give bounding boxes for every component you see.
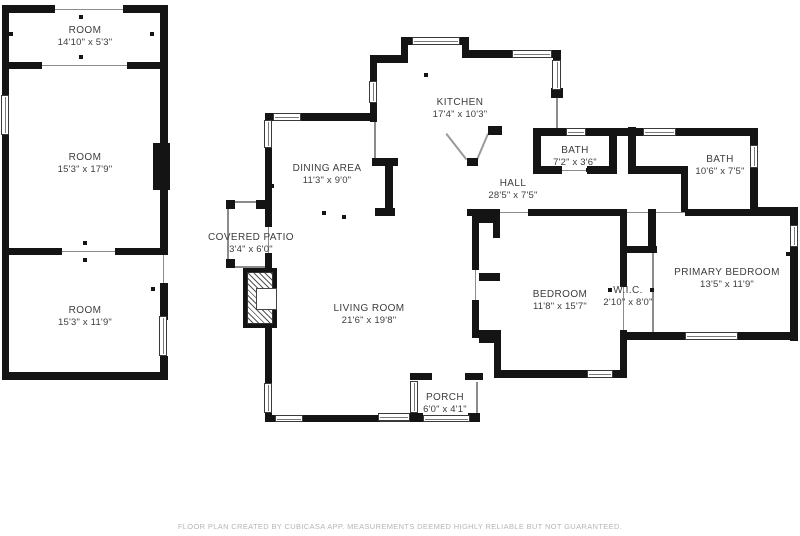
window-symbol: [512, 50, 552, 58]
room-label-wic: W.I.C. 2'10" x 8'0": [603, 285, 652, 309]
opening-line: [498, 212, 528, 213]
opening-line: [374, 122, 376, 158]
floor-plan-canvas: ROOM 14'10" x 5'3" ROOM 15'3" x 17'9" RO…: [0, 0, 800, 536]
window-symbol: [369, 81, 377, 103]
window-symbol: [750, 145, 758, 168]
wall-segment: [467, 158, 478, 166]
door-swing-line: [445, 133, 467, 160]
patio-post: [226, 200, 235, 209]
window-symbol: [412, 37, 460, 45]
door-marker-dot: [79, 55, 83, 59]
room-name: BATH: [553, 145, 597, 157]
disclaimer-text: FLOOR PLAN CREATED BY CUBICASA APP. MEAS…: [178, 522, 622, 531]
window-symbol: [275, 415, 303, 422]
opening-line: [163, 255, 164, 283]
room-label-covered-patio: COVERED PATIO 3'4" x 6'0": [208, 232, 294, 256]
wall-segment: [265, 148, 272, 205]
wall-segment: [2, 5, 9, 97]
wall-segment: [685, 209, 793, 216]
room-label-bedroom: BEDROOM 11'8" x 15'7": [533, 289, 587, 313]
room-name: DINING AREA: [293, 163, 362, 175]
opening-line: [627, 212, 648, 213]
wall-segment: [472, 300, 479, 338]
patio-post: [226, 259, 235, 268]
wall-segment: [681, 166, 688, 212]
wall-segment: [303, 415, 380, 422]
wall-segment: [613, 370, 623, 378]
opening-line: [62, 251, 115, 252]
wall-segment: [479, 273, 500, 281]
wall-segment: [2, 62, 42, 69]
wall-segment: [265, 205, 272, 227]
wall-segment: [676, 128, 758, 136]
room-dimensions: 11'3" x 9'0": [293, 175, 362, 187]
window-symbol: [423, 415, 470, 422]
room-dimensions: 11'8" x 15'7": [533, 301, 587, 313]
opening-line: [42, 65, 127, 66]
door-marker-dot: [151, 250, 155, 254]
room-label-primary-bedroom: PRIMARY BEDROOM 13'5" x 11'9": [674, 267, 780, 291]
opening-line: [55, 9, 123, 10]
door-marker-dot: [424, 73, 428, 77]
window-symbol: [273, 113, 301, 121]
wall-segment: [738, 332, 798, 340]
opening-line: [556, 97, 558, 128]
wall-segment: [488, 126, 502, 135]
wall-segment: [2, 5, 55, 13]
door-marker-dot: [150, 32, 154, 36]
room-dimensions: 2'10" x 8'0": [603, 297, 652, 309]
wall-segment: [497, 370, 587, 378]
room-name: BEDROOM: [533, 289, 587, 301]
wall-segment: [750, 166, 758, 212]
wall-segment: [410, 413, 423, 422]
room-name: ROOM: [58, 25, 113, 37]
room-label-room-bottom-left: ROOM 15'3" x 11'9": [58, 305, 112, 329]
room-label-room-middle-left: ROOM 15'3" x 17'9": [58, 152, 113, 176]
room-label-bath-small: BATH 7'2" x 3'6": [553, 145, 597, 169]
wall-segment: [2, 133, 9, 380]
door-marker-dot: [342, 215, 346, 219]
window-symbol: [552, 60, 561, 90]
room-label-living-room: LIVING ROOM 21'6" x 19'8": [333, 303, 404, 327]
window-symbol: [264, 383, 272, 413]
room-dimensions: 13'5" x 11'9": [674, 279, 780, 291]
window-symbol: [410, 381, 418, 413]
room-name: W.I.C.: [603, 285, 652, 297]
room-label-hall: HALL 28'5" x 7'5": [488, 178, 537, 202]
room-dimensions: 15'3" x 17'9": [58, 164, 113, 176]
wall-segment: [479, 330, 501, 343]
wall-segment: [620, 246, 657, 253]
window-symbol: [264, 120, 272, 148]
wall-segment: [115, 248, 168, 255]
opening-line: [562, 170, 587, 171]
room-name: COVERED PATIO: [208, 232, 294, 244]
room-dimensions: 17'4" x 10'3": [433, 109, 488, 121]
wall-segment: [528, 209, 627, 216]
wall-segment: [301, 113, 377, 121]
patio-post: [256, 200, 265, 209]
window-symbol: [566, 128, 586, 136]
door-marker-dot: [83, 241, 87, 245]
wall-segment: [127, 62, 168, 69]
wall-segment: [790, 245, 798, 341]
room-label-kitchen: KITCHEN 17'4" x 10'3": [433, 97, 488, 121]
door-marker-dot: [83, 258, 87, 262]
door-marker-dot: [9, 32, 13, 36]
room-label-dining-area: DINING AREA 11'3" x 9'0": [293, 163, 362, 187]
door-swing-line: [476, 133, 489, 160]
wall-segment: [493, 209, 500, 238]
room-dimensions: 15'3" x 11'9": [58, 317, 112, 329]
window-symbol: [643, 128, 676, 136]
room-name: PORCH: [423, 392, 467, 404]
room-label-room-top-left: ROOM 14'10" x 5'3": [58, 25, 113, 49]
wall-segment: [265, 327, 272, 383]
wall-segment: [648, 332, 685, 340]
fireplace-firebox: [256, 288, 277, 310]
wall-segment: [628, 166, 688, 174]
wall-segment: [465, 373, 483, 380]
opening-line: [475, 270, 476, 300]
window-symbol: [587, 370, 613, 378]
wall-segment: [2, 248, 62, 255]
room-name: HALL: [488, 178, 537, 190]
room-dimensions: 6'0" x 4'1": [423, 404, 467, 416]
room-name: KITCHEN: [433, 97, 488, 109]
wall-segment: [375, 208, 395, 216]
door-marker-dot: [79, 15, 83, 19]
room-dimensions: 21'6" x 19'8": [333, 315, 404, 327]
opening-line: [476, 382, 478, 413]
wall-segment: [472, 216, 500, 223]
door-marker-dot: [322, 211, 326, 215]
door-marker-dot: [786, 252, 790, 256]
room-dimensions: 10'6" x 7'5": [695, 166, 744, 178]
window-symbol: [159, 316, 167, 356]
wall-segment: [2, 372, 168, 380]
wall-segment: [160, 5, 168, 255]
room-name: LIVING ROOM: [333, 303, 404, 315]
room-name: ROOM: [58, 305, 112, 317]
room-name: PRIMARY BEDROOM: [674, 267, 780, 279]
opening-line: [656, 212, 685, 213]
wall-segment: [410, 373, 432, 380]
wall-segment: [160, 283, 168, 320]
door-marker-dot: [270, 184, 274, 188]
room-label-bath-large: BATH 10'6" x 7'5": [695, 154, 744, 178]
room-dimensions: 14'10" x 5'3": [58, 37, 113, 49]
wall-segment: [372, 158, 398, 166]
wall-segment: [462, 50, 514, 58]
room-dimensions: 28'5" x 7'5": [488, 190, 537, 202]
room-dimensions: 7'2" x 3'6": [553, 157, 597, 169]
wall-segment: [385, 166, 393, 210]
window-symbol: [685, 332, 738, 340]
room-label-porch: PORCH 6'0" x 4'1": [423, 392, 467, 416]
window-symbol: [790, 225, 798, 247]
room-dimensions: 3'4" x 6'0": [208, 244, 294, 256]
window-symbol: [378, 413, 410, 421]
door-marker-dot: [151, 287, 155, 291]
wall-segment: [153, 143, 170, 190]
room-name: BATH: [695, 154, 744, 166]
room-name: ROOM: [58, 152, 113, 164]
window-symbol: [1, 95, 9, 135]
wall-segment: [617, 128, 645, 136]
